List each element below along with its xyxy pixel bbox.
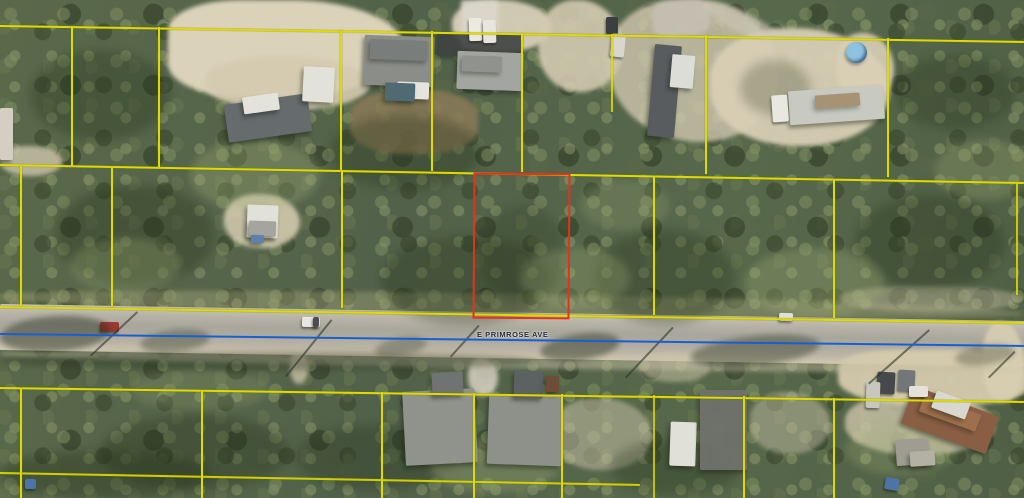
- parcel-line: [20, 166, 22, 306]
- parcel-line: [20, 388, 22, 498]
- tree-shadow: [0, 352, 540, 370]
- car: [606, 17, 618, 34]
- shed-roof: [0, 108, 13, 160]
- parcel-line: [431, 31, 433, 171]
- house-roof: [402, 388, 478, 466]
- tree-canopy-shadow: [30, 50, 170, 140]
- parcel-line: [521, 33, 523, 172]
- blue-tarp: [251, 235, 264, 243]
- parcel-line: [158, 27, 160, 167]
- parcel-line: [71, 26, 73, 166]
- parcel-line: [653, 176, 655, 315]
- house-roof: [487, 394, 563, 467]
- road-label: E PRIMROSE AVE: [477, 331, 548, 339]
- tree-canopy-highlight: [580, 180, 670, 230]
- tree-canopy-highlight: [70, 238, 180, 293]
- shed-roof: [546, 376, 560, 392]
- tree-canopy-highlight: [935, 140, 1024, 200]
- parcel-line: [473, 393, 475, 498]
- aerial-parcel-map: E PRIMROSE AVE: [0, 0, 1024, 498]
- parcel-line: [561, 394, 563, 498]
- pool: [846, 42, 867, 63]
- shed-roof: [670, 54, 696, 89]
- shed-roof: [302, 66, 335, 103]
- blue-object: [884, 477, 900, 491]
- parcel-line: [887, 38, 889, 177]
- blue-object: [25, 479, 36, 489]
- shed-roof: [910, 450, 936, 467]
- parcel-line: [111, 167, 113, 306]
- tree-canopy-highlight: [745, 248, 885, 318]
- mobile-home: [700, 390, 747, 470]
- parcel-line: [833, 398, 835, 498]
- parcel-line: [833, 179, 835, 318]
- parcel-line: [381, 392, 383, 498]
- parcel-line: [653, 395, 655, 498]
- car-windshield: [313, 317, 319, 327]
- roof-ridge: [370, 39, 429, 61]
- parcel-line: [611, 34, 613, 112]
- parcel-line: [201, 390, 203, 498]
- truck: [909, 386, 928, 397]
- parcel-line: [1016, 183, 1018, 295]
- parcel-line: [743, 396, 745, 498]
- parcel-line: [705, 35, 707, 174]
- parcel-line: [340, 30, 342, 170]
- tree-canopy-highlight: [190, 140, 320, 210]
- shed-roof: [669, 422, 697, 467]
- car: [483, 20, 497, 43]
- roof-panel: [385, 82, 416, 101]
- tree-canopy-shadow: [895, 55, 1015, 130]
- car: [771, 94, 789, 122]
- car: [469, 18, 483, 41]
- rv: [866, 382, 881, 408]
- roof-ridge: [462, 55, 503, 72]
- tree-canopy-shadow: [330, 115, 480, 190]
- highlighted-parcel-outline: [472, 173, 570, 320]
- sand-clearing: [750, 392, 830, 454]
- parcel-line: [341, 170, 343, 308]
